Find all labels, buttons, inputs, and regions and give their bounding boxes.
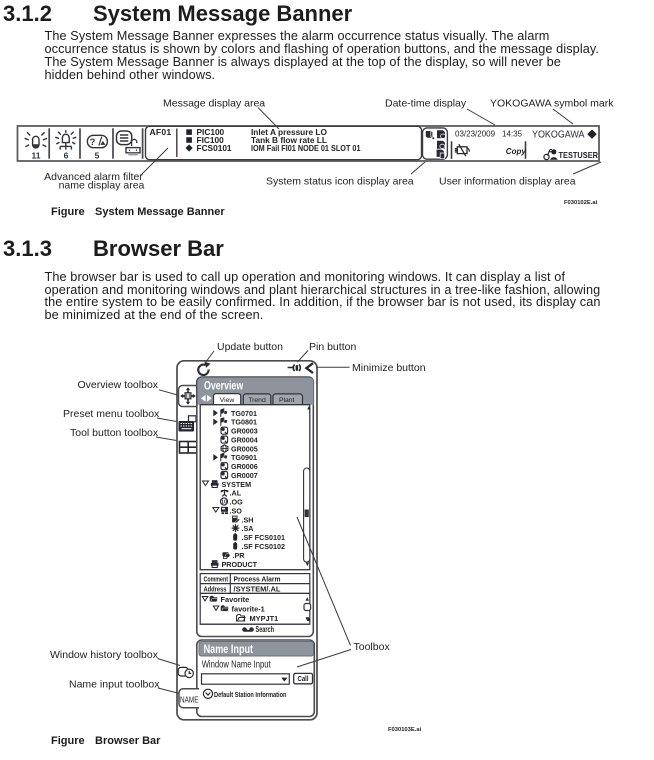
svg-text:YOKOGAWA: YOKOGAWA [532, 130, 585, 141]
svg-text:GR0006: GR0006 [231, 462, 258, 471]
svg-text:Window history toolbox: Window history toolbox [50, 649, 159, 661]
svg-text:System status icon display are: System status icon display area [266, 175, 414, 187]
svg-text:6: 6 [64, 151, 69, 161]
svg-text:Window Name Input: Window Name Input [202, 659, 271, 670]
svg-text:5: 5 [95, 151, 100, 161]
svg-text:Default Station Information: Default Station Information [214, 690, 287, 699]
svg-text:Search: Search [256, 625, 275, 634]
svg-text:.SF FCS0101: .SF FCS0101 [242, 533, 286, 542]
svg-text:GR0005: GR0005 [231, 444, 258, 453]
svg-text:NAME: NAME [180, 695, 199, 704]
svg-text:Message display area: Message display area [163, 98, 265, 110]
svg-text:.SH: .SH [242, 515, 254, 524]
svg-text:Toolbox: Toolbox [354, 641, 391, 653]
svg-text:Call: Call [298, 674, 309, 683]
svg-text:Address: Address [204, 584, 227, 593]
svg-text:Date-time display: Date-time display [385, 98, 467, 110]
svg-text:GR0004: GR0004 [231, 435, 258, 444]
svg-text:Comment: Comment [204, 575, 229, 584]
svg-text:F030102E.ai: F030102E.ai [564, 200, 598, 206]
svg-text:YOKOGAWA symbol mark: YOKOGAWA symbol mark [490, 98, 614, 110]
svg-text:SYSTEM: SYSTEM [222, 480, 252, 489]
svg-text:Name Input: Name Input [204, 644, 254, 656]
svg-text:Copy: Copy [506, 147, 527, 156]
svg-text:View: View [220, 397, 235, 404]
svg-text:TG0801: TG0801 [231, 418, 257, 427]
svg-text:Update button: Update button [217, 341, 283, 353]
svg-text:Plant: Plant [279, 397, 295, 404]
svg-text:User information display area: User information display area [439, 175, 576, 187]
svg-text:11: 11 [32, 151, 41, 161]
svg-text:Overview: Overview [204, 381, 243, 393]
svg-text:.OG: .OG [230, 498, 244, 507]
svg-text:GR0007: GR0007 [231, 471, 258, 480]
svg-text:FCS0101: FCS0101 [197, 143, 232, 153]
svg-text:MYPJT1: MYPJT1 [250, 614, 279, 623]
svg-text:.PR: .PR [233, 551, 246, 560]
svg-text:IOM Fail FI01 NODE 01 SLOT 01: IOM Fail FI01 NODE 01 SLOT 01 [251, 143, 361, 153]
svg-text:Pin button: Pin button [309, 341, 356, 353]
svg-text:Preset menu toolbox: Preset menu toolbox [63, 408, 160, 420]
svg-text:?: ? [90, 137, 96, 148]
svg-text:03/23/2009: 03/23/2009 [455, 130, 496, 139]
svg-text:.SO: .SO [230, 506, 243, 515]
svg-text:Overview toolbox: Overview toolbox [78, 379, 159, 391]
svg-text:Tool button toolbox: Tool button toolbox [70, 427, 159, 439]
svg-text:.AL: .AL [230, 489, 242, 498]
svg-text:favorite-1: favorite-1 [232, 605, 265, 614]
svg-text:AF01: AF01 [150, 127, 172, 137]
svg-text:GR0003: GR0003 [231, 427, 258, 436]
svg-text:name display area: name display area [59, 180, 145, 192]
svg-text:/SYSTEM/.AL: /SYSTEM/.AL [234, 584, 281, 593]
svg-text:Trend: Trend [248, 397, 266, 404]
svg-text:14:35: 14:35 [502, 130, 523, 139]
svg-text:Process Alarm: Process Alarm [234, 575, 281, 584]
svg-text:F030103E.ai: F030103E.ai [388, 727, 422, 733]
svg-text:Minimize button: Minimize button [352, 362, 426, 374]
svg-text:.SF FCS0102: .SF FCS0102 [242, 542, 286, 551]
svg-text:PRODUCT: PRODUCT [222, 560, 258, 569]
svg-text:.SA: .SA [242, 524, 254, 533]
svg-text:Favorite: Favorite [221, 595, 250, 604]
svg-text:Name input toolbox: Name input toolbox [69, 678, 160, 690]
svg-text:TG0901: TG0901 [231, 453, 257, 462]
svg-text:TESTUSER: TESTUSER [559, 150, 599, 160]
svg-text:TG0701: TG0701 [231, 409, 257, 418]
